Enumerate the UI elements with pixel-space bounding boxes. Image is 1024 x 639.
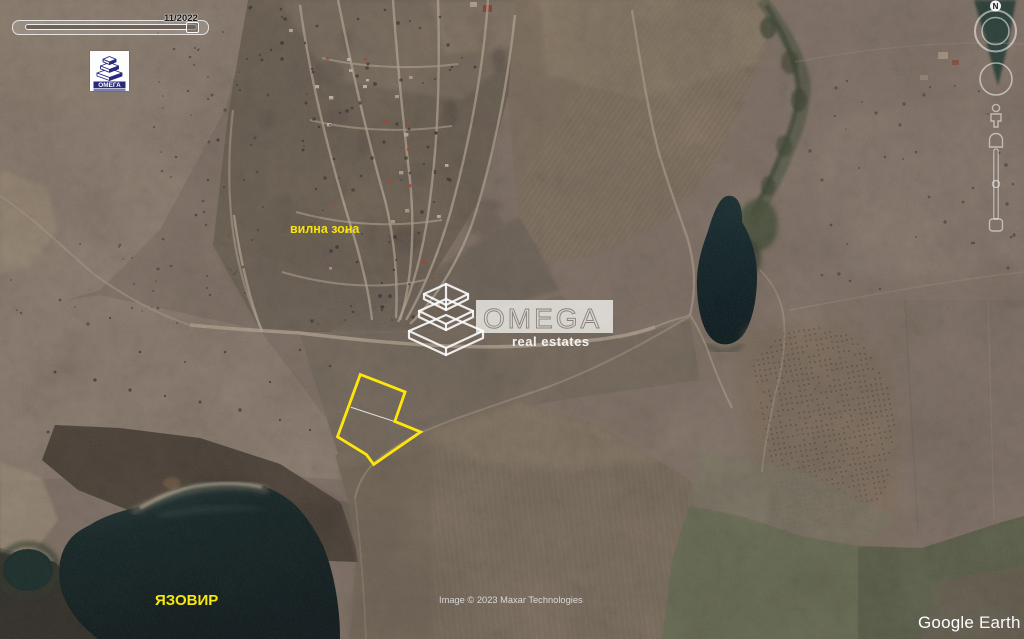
svg-text:N: N bbox=[993, 2, 999, 11]
svg-text:ОМЕГА: ОМЕГА bbox=[98, 82, 121, 89]
